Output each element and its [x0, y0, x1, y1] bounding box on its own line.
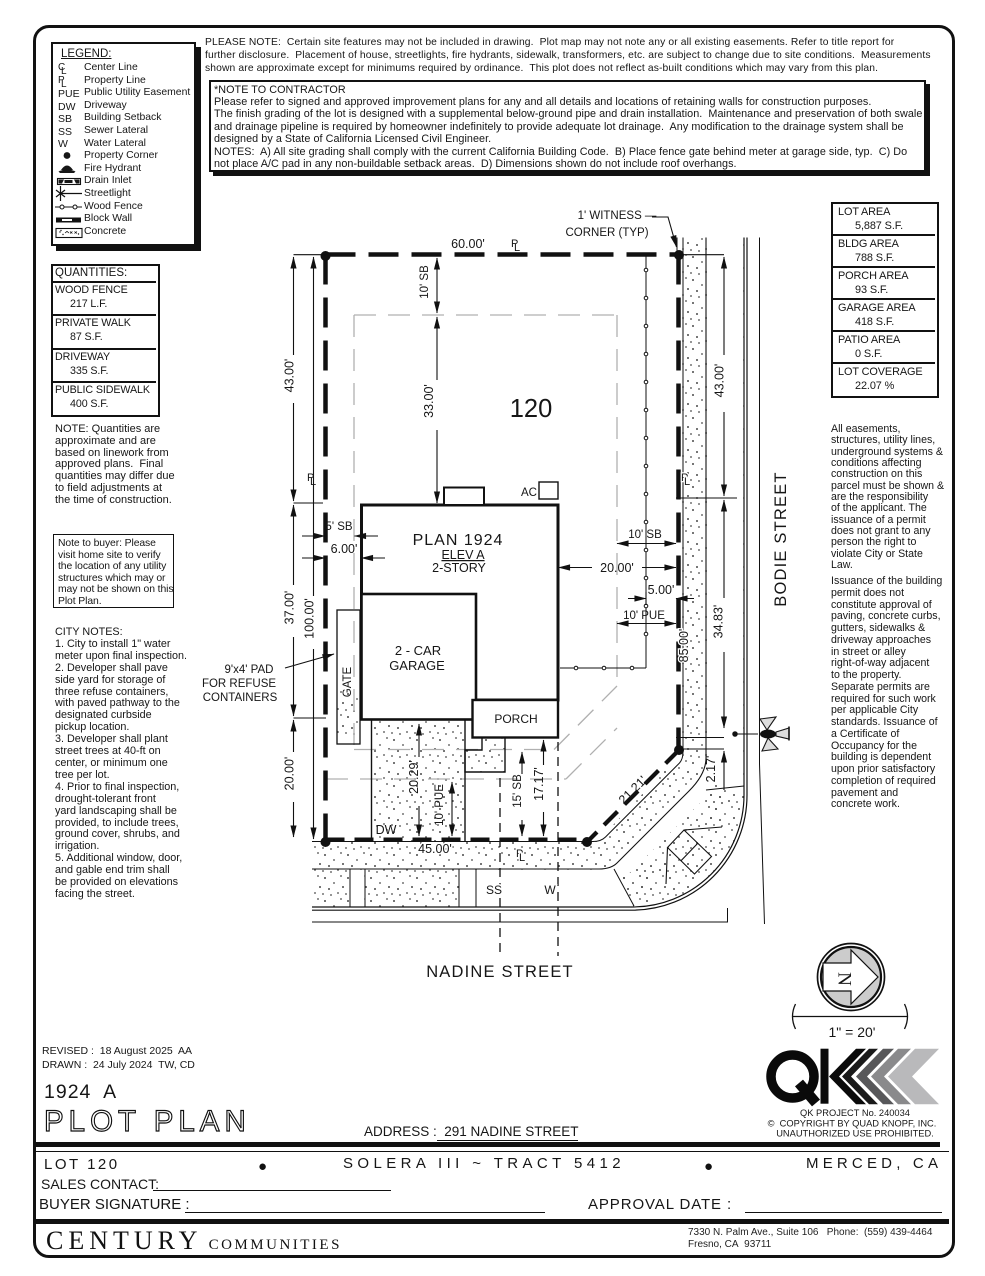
svg-text:SS: SS	[486, 883, 502, 897]
svg-text:1' WITNESS —: 1' WITNESS —	[578, 210, 657, 222]
svg-text:60.00': 60.00'	[451, 237, 485, 251]
svg-text:PLAN 1924: PLAN 1924	[413, 532, 504, 549]
svg-text:CORNER (TYP): CORNER (TYP)	[565, 227, 648, 239]
svg-text:33.00': 33.00'	[422, 384, 436, 418]
svg-text:10' SB: 10' SB	[419, 265, 431, 299]
svg-text:DW: DW	[376, 823, 397, 837]
svg-text:20.29': 20.29'	[407, 760, 421, 794]
svg-text:17.17': 17.17'	[532, 767, 546, 801]
svg-text:15' SB: 15' SB	[512, 774, 524, 808]
svg-text:© COPYRIGHT BY QUAD KNOPF, IN: © COPYRIGHT BY QUAD KNOPF, INC.	[768, 1119, 937, 1129]
svg-text:W: W	[544, 883, 556, 897]
svg-text:CONTAINERS: CONTAINERS	[203, 692, 278, 704]
svg-text:N: N	[834, 972, 855, 986]
svg-text:20.00': 20.00'	[283, 757, 297, 791]
svg-text:GATE: GATE	[342, 666, 354, 697]
svg-text:PORCH: PORCH	[494, 712, 537, 726]
svg-text:5.00': 5.00'	[648, 583, 675, 597]
svg-text:100.00': 100.00'	[303, 598, 317, 639]
svg-text:2 - CAR: 2 - CAR	[395, 643, 441, 658]
svg-text:10' PUE: 10' PUE	[434, 784, 446, 826]
svg-text:AC: AC	[521, 487, 537, 499]
svg-text:UNAUTHORIZED USE PROHIBITED.: UNAUTHORIZED USE PROHIBITED.	[776, 1129, 934, 1139]
svg-text:L: L	[684, 476, 690, 488]
svg-text:FOR REFUSE: FOR REFUSE	[202, 678, 276, 690]
svg-text:6.00': 6.00'	[331, 542, 358, 556]
svg-text:L: L	[519, 852, 525, 864]
svg-text:GARAGE: GARAGE	[389, 658, 445, 673]
svg-text:45.00': 45.00'	[418, 842, 452, 856]
svg-text:43.00': 43.00'	[713, 364, 727, 398]
svg-text:20.00': 20.00'	[600, 561, 634, 575]
svg-text:37.00': 37.00'	[283, 591, 297, 625]
svg-text:ELEV A: ELEV A	[441, 548, 485, 562]
svg-text:QK PROJECT No. 240034: QK PROJECT No. 240034	[800, 1108, 910, 1118]
svg-text:9'x4' PAD: 9'x4' PAD	[225, 664, 274, 676]
svg-text:5' SB: 5' SB	[325, 521, 352, 533]
svg-text:10' PUE: 10' PUE	[623, 610, 665, 622]
svg-text:85.00': 85.00'	[677, 629, 691, 663]
svg-text:43.00': 43.00'	[283, 359, 297, 393]
svg-text:120: 120	[510, 395, 553, 423]
svg-text:2-STORY: 2-STORY	[432, 561, 486, 575]
svg-text:10' SB: 10' SB	[628, 529, 662, 541]
svg-text:34.83': 34.83'	[712, 605, 726, 639]
svg-text:BODIE STREET: BODIE STREET	[772, 471, 790, 606]
svg-text:2.17': 2.17'	[704, 756, 718, 783]
svg-text:1" = 20': 1" = 20'	[829, 1024, 876, 1040]
svg-text:L: L	[310, 476, 316, 488]
svg-text:L: L	[514, 242, 520, 254]
svg-text:NADINE STREET: NADINE STREET	[426, 963, 574, 981]
